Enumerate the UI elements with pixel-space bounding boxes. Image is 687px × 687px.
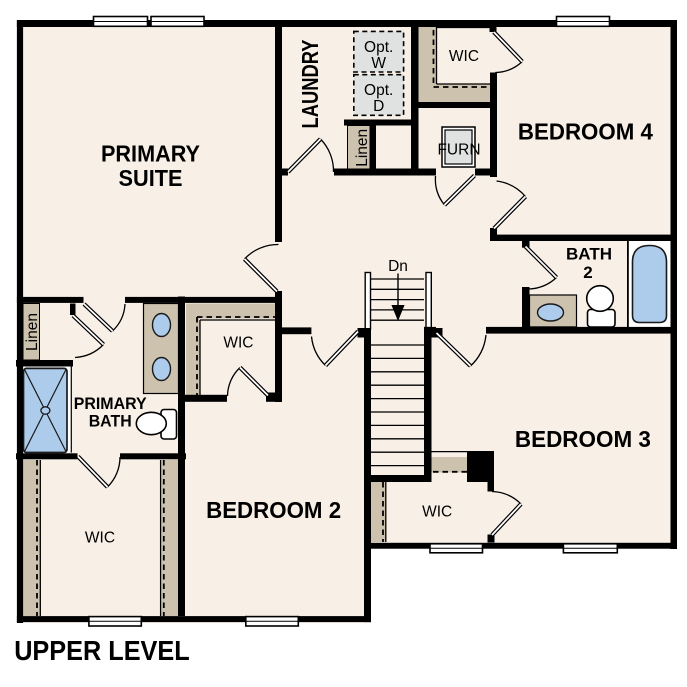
svg-text:D: D: [373, 98, 384, 115]
svg-text:BEDROOM 4: BEDROOM 4: [518, 118, 653, 144]
svg-text:WIC: WIC: [449, 48, 479, 65]
svg-text:BEDROOM 2: BEDROOM 2: [206, 497, 341, 523]
svg-text:BATH: BATH: [566, 244, 612, 263]
svg-text:WIC: WIC: [422, 504, 452, 521]
svg-text:UPPER LEVEL: UPPER LEVEL: [14, 635, 190, 666]
svg-text:BATH: BATH: [89, 412, 132, 431]
svg-text:W: W: [371, 55, 386, 72]
svg-text:FURN: FURN: [437, 142, 480, 159]
svg-text:Dn: Dn: [388, 258, 408, 275]
svg-text:PRIMARY: PRIMARY: [101, 141, 200, 167]
svg-text:LAUNDRY: LAUNDRY: [297, 40, 323, 129]
svg-text:WIC: WIC: [85, 530, 115, 547]
svg-text:Opt.: Opt.: [364, 39, 393, 56]
svg-text:Linen: Linen: [354, 129, 371, 167]
svg-text:WIC: WIC: [223, 334, 253, 351]
svg-text:Opt.: Opt.: [364, 82, 393, 99]
svg-text:BEDROOM 3: BEDROOM 3: [515, 426, 651, 452]
svg-text:2: 2: [583, 263, 592, 282]
svg-text:Linen: Linen: [24, 313, 41, 351]
svg-text:PRIMARY: PRIMARY: [74, 394, 148, 413]
svg-text:SUITE: SUITE: [119, 165, 183, 191]
